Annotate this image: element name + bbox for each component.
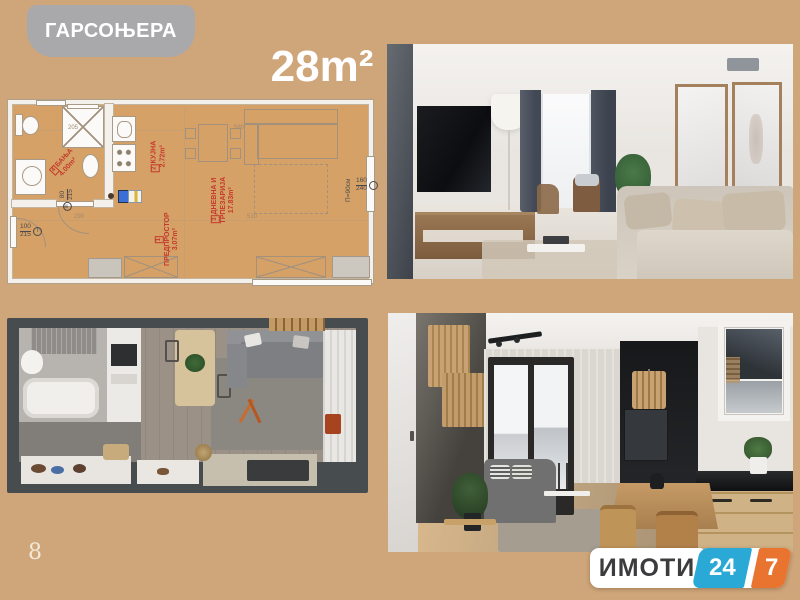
plant-pot bbox=[750, 457, 767, 474]
pillow-3d bbox=[292, 335, 310, 349]
window-mark bbox=[369, 181, 378, 190]
sofa-chaise-outline bbox=[244, 123, 259, 165]
logo-7-text: 7 bbox=[765, 554, 778, 582]
stove-3d bbox=[111, 344, 137, 366]
parapet-label: П=90см bbox=[346, 175, 353, 205]
room-number: 2 bbox=[151, 165, 160, 172]
dining-table-outline bbox=[198, 124, 228, 162]
meter-icon bbox=[128, 190, 142, 203]
balcony-rail-3d bbox=[269, 318, 325, 331]
room-label-predprostor: 1ПРЕДПРОСТОР 3.07m² bbox=[155, 210, 179, 268]
kitchen-countertop bbox=[696, 471, 793, 491]
striped-cushion bbox=[512, 465, 532, 479]
room-area: 3.07m² bbox=[171, 210, 179, 268]
unit-area-label: 28m² bbox=[256, 42, 388, 92]
coffee-table-books bbox=[543, 236, 569, 244]
plant-3d bbox=[185, 354, 205, 372]
coffee-table bbox=[527, 244, 585, 252]
mirror-frame bbox=[675, 84, 728, 202]
room-label-kujna: 2КУЈНА 2.72m² bbox=[151, 137, 168, 175]
room-number: 3 bbox=[211, 215, 220, 222]
bathtub-3d bbox=[23, 378, 99, 418]
dim-height: 215 bbox=[20, 231, 31, 239]
dim-width: 100 bbox=[20, 224, 31, 231]
vase bbox=[650, 473, 664, 489]
washing-machine-drum bbox=[22, 166, 42, 186]
wall-vent bbox=[726, 357, 740, 383]
logo-brand-text: ИМОТИ bbox=[599, 554, 695, 583]
door-dim-entry: 100215 I bbox=[20, 224, 42, 238]
dim-height: 215 bbox=[66, 189, 74, 200]
bathroom-wall bbox=[12, 200, 56, 207]
brochure-page: ГАРСОЊЕРА 28m² bbox=[0, 0, 800, 600]
rug-outline bbox=[254, 164, 328, 214]
sink bbox=[82, 154, 99, 178]
drawer-handle bbox=[710, 499, 732, 502]
bathroom-wall bbox=[94, 200, 113, 207]
mirror-plant-reflection bbox=[749, 114, 763, 164]
outlet-dot bbox=[108, 193, 114, 199]
slat-cabinet bbox=[442, 373, 486, 427]
unit-type-label: ГАРСОЊЕРА bbox=[45, 20, 177, 43]
dark-mat-3d bbox=[247, 460, 309, 481]
page-number: 8 bbox=[28, 540, 42, 565]
logo-24-text: 24 bbox=[709, 554, 736, 582]
tv bbox=[417, 106, 491, 192]
room-number: 1 bbox=[155, 236, 164, 243]
room-name: ПРЕДПРОСТОР bbox=[164, 212, 171, 266]
tile-wall bbox=[31, 328, 97, 354]
photo-livingroom-2 bbox=[388, 313, 793, 552]
drawer-handle bbox=[750, 499, 772, 502]
door-mark: I bbox=[33, 227, 42, 236]
chair-outline bbox=[230, 148, 241, 159]
bench-3d bbox=[103, 444, 129, 460]
sofa-chaise-3d bbox=[227, 344, 247, 388]
accent-wall bbox=[387, 44, 413, 279]
basket-3d bbox=[195, 444, 212, 461]
toilet-3d bbox=[21, 350, 43, 374]
slippers-3d bbox=[157, 468, 169, 475]
tv-bench-outline bbox=[256, 256, 326, 278]
floor-lamp-pole bbox=[508, 130, 510, 210]
red-chair-3d bbox=[325, 414, 341, 434]
dining-chair bbox=[600, 505, 636, 552]
chair-blanket bbox=[575, 174, 599, 186]
sofa-seat-outline bbox=[257, 123, 338, 159]
floorplan-3d bbox=[7, 318, 368, 493]
shoes-3d bbox=[73, 464, 86, 473]
edge-dim: 290 bbox=[74, 214, 84, 220]
sofa-seat bbox=[637, 230, 793, 279]
dim-height: 240 bbox=[356, 185, 367, 193]
unit-type-badge: ГАРСОЊЕРА bbox=[27, 5, 195, 57]
spot-light bbox=[514, 337, 520, 343]
striped-cushion bbox=[490, 465, 510, 479]
ac-unit bbox=[727, 58, 759, 71]
edge-dim: 205 bbox=[68, 125, 78, 131]
edge-dim: 580 bbox=[234, 125, 244, 131]
window-reflection bbox=[726, 381, 782, 413]
bottom-windows bbox=[252, 279, 372, 286]
entry-cabinet bbox=[88, 258, 122, 278]
tv bbox=[624, 409, 668, 461]
window-dim: 160240 bbox=[356, 178, 378, 192]
room-area: 17.83m² bbox=[227, 170, 235, 230]
room-area: 2.72m² bbox=[159, 137, 167, 175]
shower-shelf bbox=[67, 104, 99, 109]
room-label-dnevna: 3ДНЕВНА И ТРПЕЗАРИЈА 17.83m² bbox=[211, 170, 235, 230]
stove bbox=[112, 144, 136, 172]
imoti-247-logo: ИМОТИ 24 7 bbox=[590, 548, 786, 588]
sofa-seat-3d bbox=[241, 342, 323, 378]
room-name: КУЈНА bbox=[151, 141, 158, 164]
chair-outline bbox=[185, 148, 196, 159]
pendant-lamp bbox=[632, 371, 666, 409]
edge-dim: 510 bbox=[247, 214, 257, 220]
counter-3d bbox=[111, 374, 137, 384]
coffee-table bbox=[544, 491, 590, 496]
curtains-3d bbox=[323, 330, 356, 462]
toilet-icon bbox=[22, 116, 39, 135]
shoes-3d bbox=[31, 464, 46, 473]
door-handle bbox=[410, 431, 414, 441]
kitchen-sink-bowl bbox=[117, 121, 132, 138]
spot-light bbox=[496, 341, 502, 347]
corner-cabinet bbox=[332, 256, 370, 278]
shoes-3d bbox=[51, 466, 64, 474]
bathroom-door-arc bbox=[58, 207, 89, 234]
accent-chair bbox=[537, 184, 559, 214]
logo-24-box: 24 bbox=[692, 548, 753, 588]
dim-width: 160 bbox=[356, 178, 367, 185]
sofa-cushion bbox=[722, 190, 787, 234]
photo-livingroom-1 bbox=[387, 44, 793, 279]
door-dim-bathroom: III 80215 bbox=[60, 189, 74, 211]
floorplan-2d: 1ПРЕДПРОСТОР 3.07m² 2КУЈНА 2.72m² 3ДНЕВН… bbox=[8, 100, 373, 283]
room-label-banja: 4БАЊА 4.00m² bbox=[46, 145, 84, 184]
chair-outline bbox=[185, 128, 196, 139]
logo-brand-box: ИМОТИ bbox=[590, 548, 704, 588]
logo-7-box: 7 bbox=[751, 548, 793, 588]
side-table bbox=[444, 519, 496, 525]
chair-3d bbox=[165, 340, 179, 362]
bathroom-window bbox=[36, 100, 66, 106]
dining-chair bbox=[656, 511, 698, 552]
door-mark: III bbox=[62, 202, 71, 211]
sofa-cushion bbox=[623, 192, 672, 231]
entry-door-leaf bbox=[10, 216, 17, 248]
